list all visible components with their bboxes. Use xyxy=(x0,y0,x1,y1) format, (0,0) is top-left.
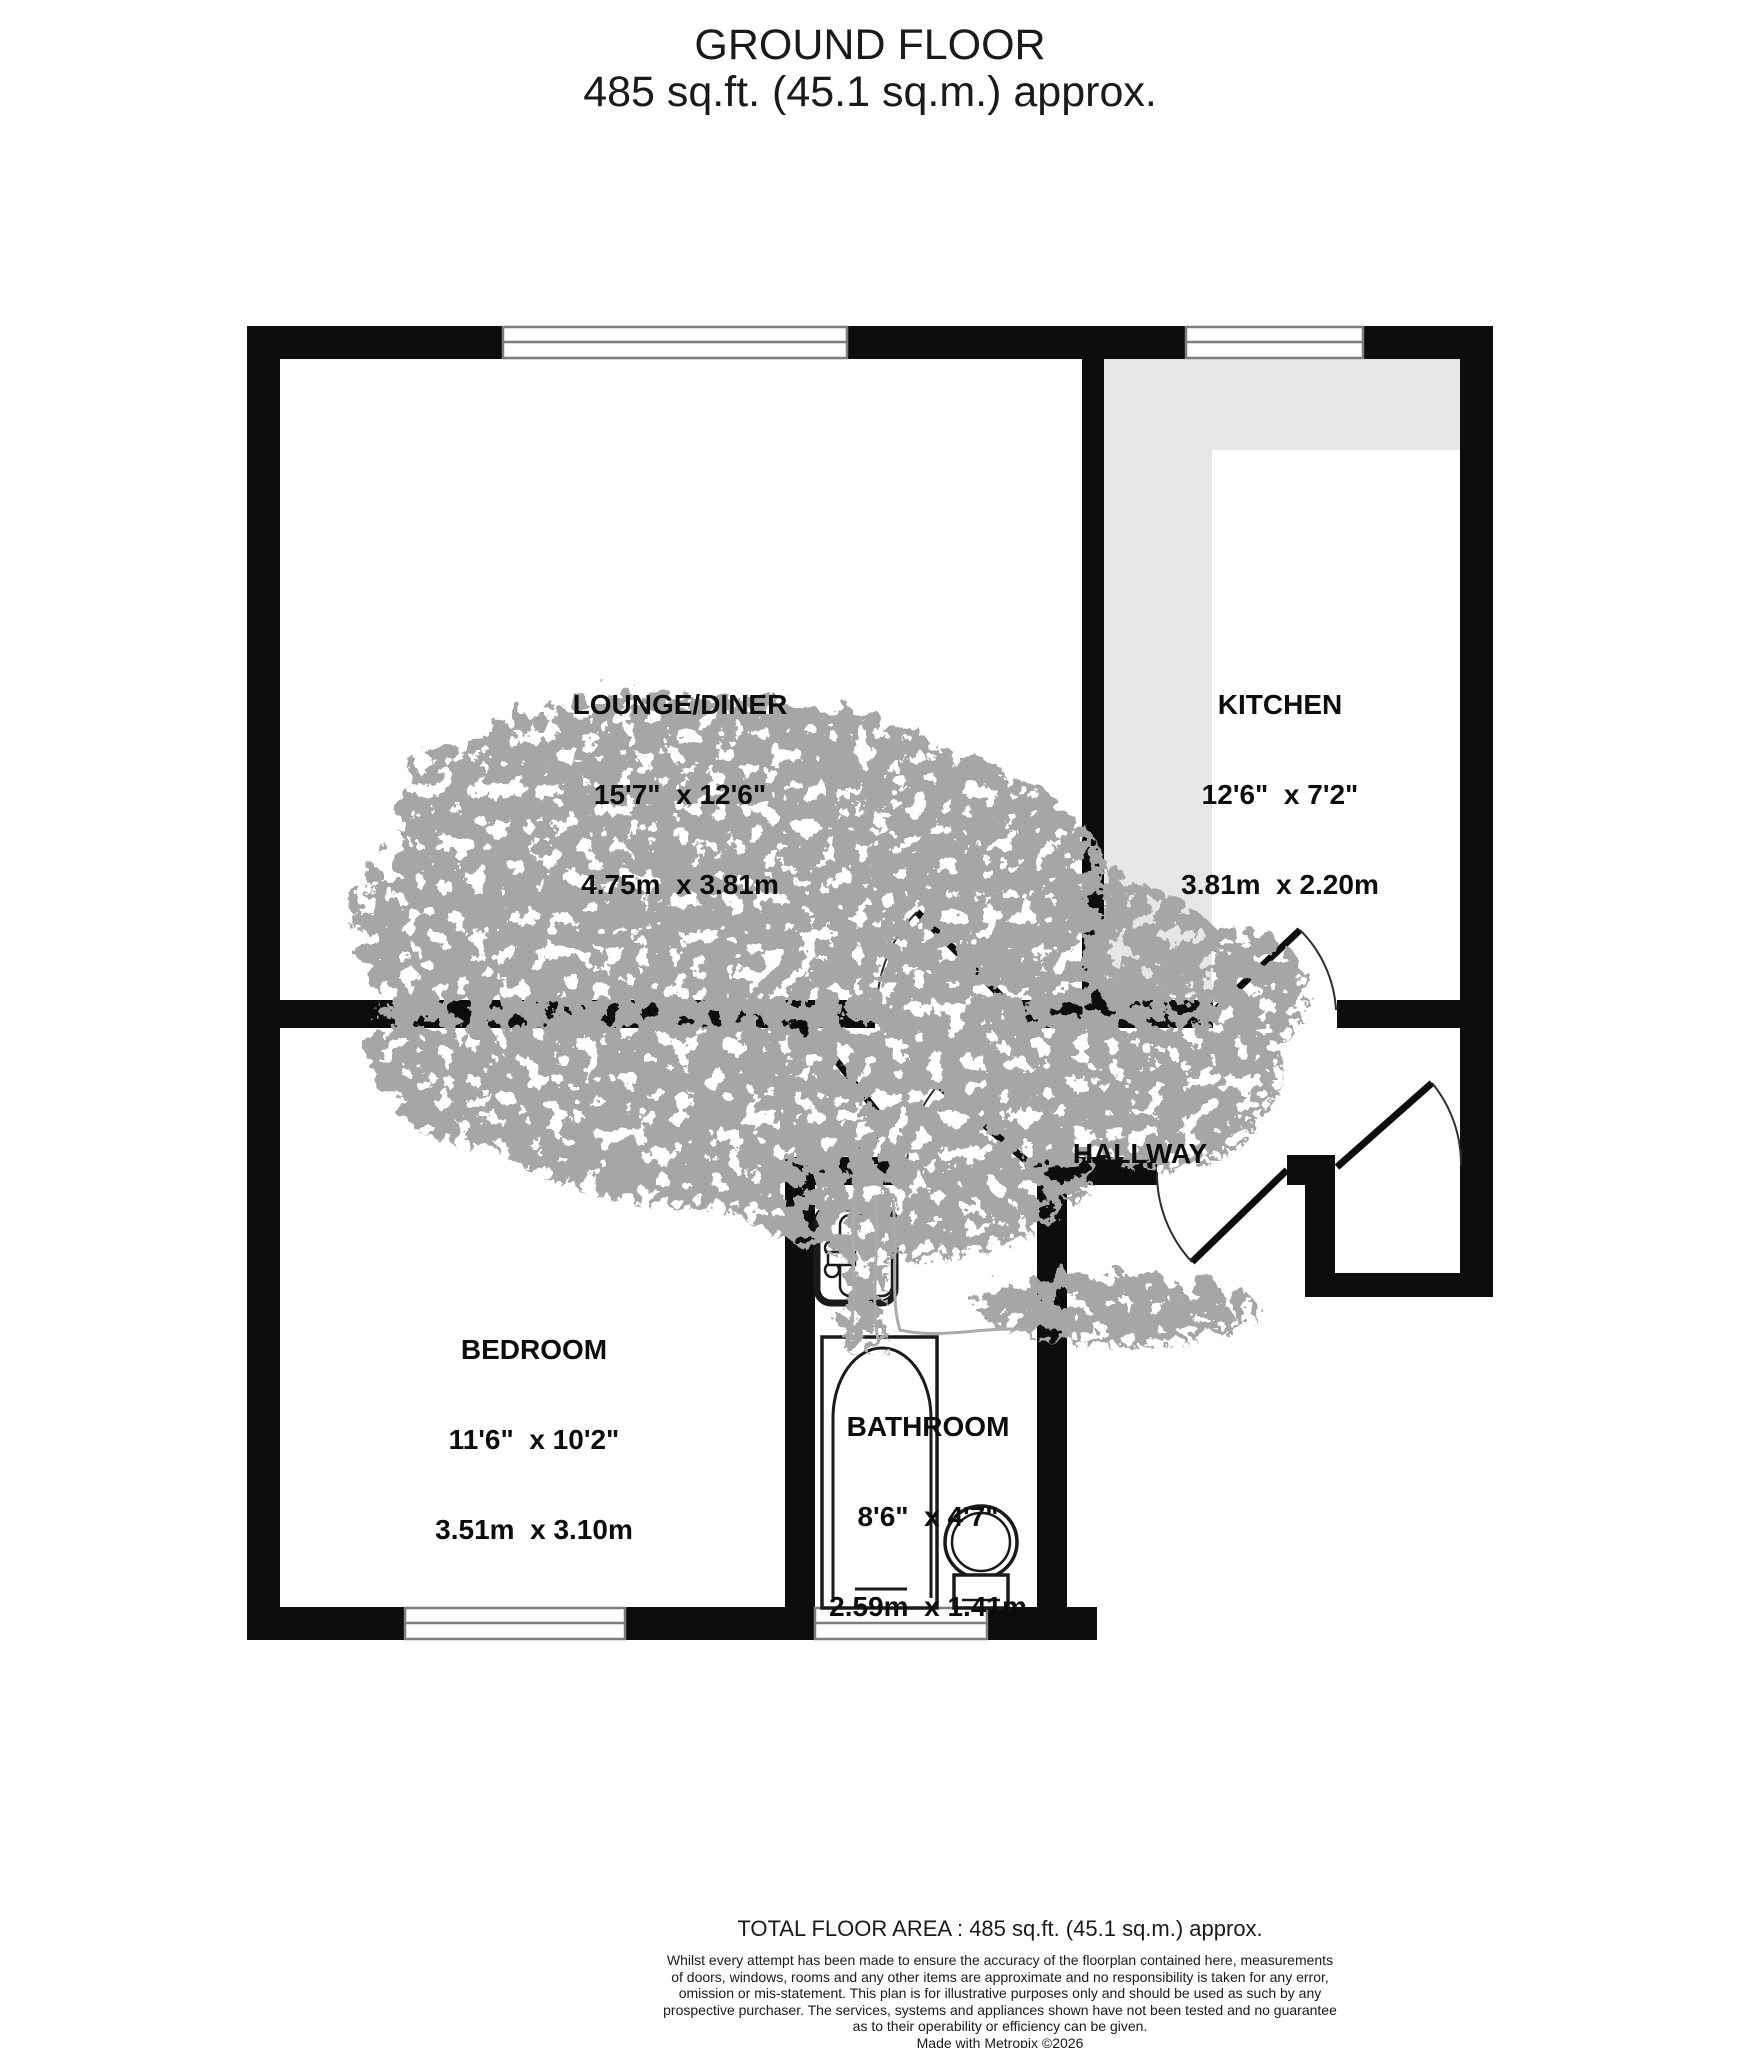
room-size-metric: 4.75m x 3.81m xyxy=(573,870,788,900)
room-size-metric: 3.81m x 2.20m xyxy=(1181,870,1379,900)
room-label-storage: STORAGE xyxy=(1331,1212,1469,1362)
room-name: LOUNGE/DINER xyxy=(573,690,788,720)
disclaimer-line: omission or mis-statement. This plan is … xyxy=(300,1985,1700,2002)
room-label-lounge: LOUNGE/DINER 15'7" x 12'6" 4.75m x 3.81m xyxy=(573,630,788,960)
disclaimer-line: as to their operability or efficiency ca… xyxy=(300,2018,1700,2035)
plan-header: GROUND FLOOR 485 sq.ft. (45.1 sq.m.) app… xyxy=(0,22,1740,116)
total-floor-area: TOTAL FLOOR AREA : 485 sq.ft. (45.1 sq.m… xyxy=(300,1916,1700,1942)
room-name: BATHROOM xyxy=(829,1412,1027,1442)
room-name: STORAGE xyxy=(1331,1272,1469,1302)
room-size-imperial: 15'7" x 12'6" xyxy=(573,780,788,810)
kitchen-window xyxy=(1186,327,1363,358)
room-name: BEDROOM xyxy=(435,1335,633,1365)
room-size-imperial: 11'6" x 10'2" xyxy=(435,1425,633,1455)
disclaimer-line: of doors, windows, rooms and any other i… xyxy=(300,1969,1700,1986)
room-size-metric: 3.51m x 3.10m xyxy=(435,1515,633,1545)
room-label-kitchen: KITCHEN 12'6" x 7'2" 3.81m x 2.20m xyxy=(1181,630,1379,960)
room-label-bedroom: BEDROOM 11'6" x 10'2" 3.51m x 3.10m xyxy=(435,1275,633,1605)
floorplan-page: GROUND FLOOR 485 sq.ft. (45.1 sq.m.) app… xyxy=(0,0,1740,2048)
floorplan-drawing xyxy=(0,0,1740,2048)
room-size-imperial: 8'6" x 4'7" xyxy=(829,1502,1027,1532)
metropix-credit: Made with Metropix ©2026 xyxy=(300,2035,1700,2048)
room-label-hallway: HALLWAY xyxy=(1073,1079,1207,1229)
lounge-window xyxy=(503,327,847,358)
page-subtitle: 485 sq.ft. (45.1 sq.m.) approx. xyxy=(0,69,1740,116)
storage-door xyxy=(1337,1083,1461,1167)
room-label-bathroom: BATHROOM 8'6" x 4'7" 2.59m x 1.41m xyxy=(829,1352,1027,1682)
bedroom-window xyxy=(405,1608,625,1639)
page-title: GROUND FLOOR xyxy=(0,22,1740,69)
disclaimer-line: prospective purchaser. The services, sys… xyxy=(300,2002,1700,2019)
plan-footer: TOTAL FLOOR AREA : 485 sq.ft. (45.1 sq.m… xyxy=(300,1916,1700,2048)
room-name: HALLWAY xyxy=(1073,1139,1207,1169)
room-size-imperial: 12'6" x 7'2" xyxy=(1181,780,1379,810)
room-size-metric: 2.59m x 1.41m xyxy=(829,1592,1027,1622)
room-name: KITCHEN xyxy=(1181,690,1379,720)
disclaimer: Whilst every attempt has been made to en… xyxy=(300,1952,1700,2048)
disclaimer-line: Whilst every attempt has been made to en… xyxy=(300,1952,1700,1969)
